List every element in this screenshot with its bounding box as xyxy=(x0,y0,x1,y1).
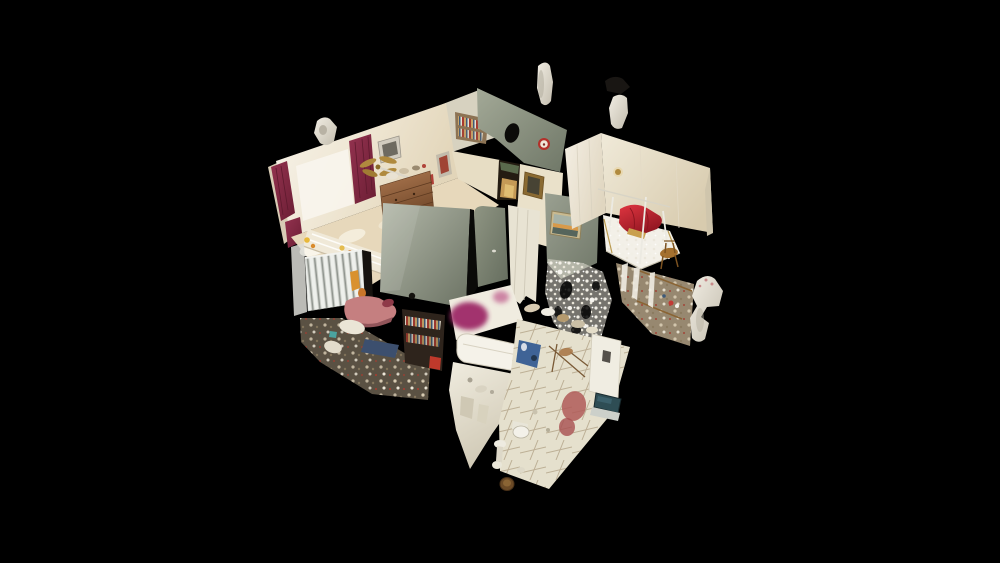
panel-speck xyxy=(492,250,496,253)
wall-inset xyxy=(460,396,474,419)
clutter-item xyxy=(571,320,585,328)
clutter-item xyxy=(386,173,398,180)
floor-white-bit xyxy=(517,467,525,473)
doorway-light-core xyxy=(504,184,514,198)
pink-towel-small xyxy=(559,418,575,436)
lace-highlight xyxy=(558,270,563,275)
clock-center xyxy=(543,143,545,145)
lace-highlight xyxy=(568,306,572,310)
fragment-pink-speck xyxy=(705,279,708,282)
privacy-blur-small xyxy=(493,291,509,303)
fragment-pink-speck xyxy=(711,283,714,286)
privacy-blur-magenta xyxy=(450,302,488,330)
lace-highlight xyxy=(576,278,580,282)
sink-pedestal xyxy=(496,446,503,462)
grey-door-panel xyxy=(474,206,508,287)
toy xyxy=(304,237,310,243)
fragment-shading xyxy=(538,70,544,98)
right-room-left-wall xyxy=(565,133,606,229)
fragment-shading xyxy=(696,308,704,332)
black-void-background xyxy=(0,0,1000,563)
dollhouse-3d-render xyxy=(0,0,1000,563)
wall-fixture xyxy=(490,390,494,394)
blue-item xyxy=(662,294,666,298)
toilet-bowl xyxy=(513,426,529,438)
red-shelf-item xyxy=(429,356,441,370)
white-door-panels xyxy=(508,205,540,304)
white-item xyxy=(675,304,679,308)
floor-item xyxy=(533,410,538,415)
fragment-pink-speck xyxy=(699,285,702,288)
drawer-knob xyxy=(413,193,415,195)
fragment-shading xyxy=(319,125,327,135)
clutter-item xyxy=(412,166,420,171)
drawer-knob xyxy=(395,199,397,201)
floor-item xyxy=(546,428,550,432)
white-bit xyxy=(521,343,527,351)
panel-dark-knob xyxy=(409,293,415,299)
white-door-panel xyxy=(589,334,621,399)
lace-highlight xyxy=(590,298,595,303)
lace-gap xyxy=(592,281,600,291)
door-panel-slot xyxy=(602,350,611,363)
gold-painting-art xyxy=(527,176,540,195)
clutter-item xyxy=(557,314,569,322)
lace-gap xyxy=(581,305,591,319)
gold-wall-sconce xyxy=(615,169,621,175)
basket-inner xyxy=(503,480,511,487)
wall-fixture xyxy=(468,378,473,383)
clutter-item xyxy=(586,327,598,334)
toy xyxy=(339,245,344,250)
dollhouse-viewer-canvas[interactable] xyxy=(0,0,1000,563)
clutter-item xyxy=(399,168,409,174)
floor-white-bit xyxy=(492,461,502,469)
red-item xyxy=(669,301,674,306)
fan-hub xyxy=(376,165,381,170)
clutter-item xyxy=(422,164,426,168)
toy xyxy=(311,244,315,248)
clutter-item xyxy=(541,308,555,316)
dark-bit xyxy=(531,355,537,361)
teal-item xyxy=(329,331,337,338)
